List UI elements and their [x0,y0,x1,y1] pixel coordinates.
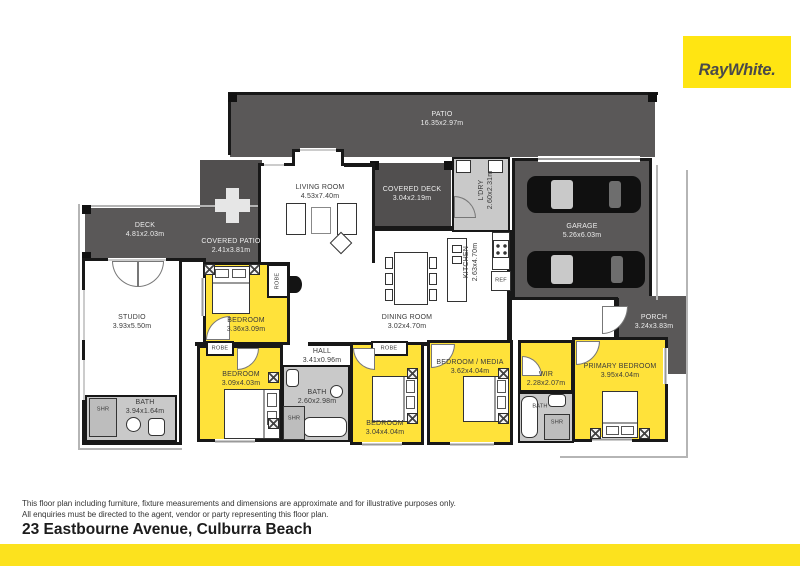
chair-icon [429,289,437,301]
bedroom1-label: BEDROOM3.36x3.09m [227,316,266,334]
property-address: 23 Eastbourne Avenue, Culburra Beach [22,521,312,539]
bath-ensuite-label: BATH [532,403,547,410]
side-table-icon [498,413,509,424]
side-table-icon [268,418,279,429]
chair-icon [429,273,437,285]
wir-label: WIR2.28x2.07m [527,370,566,388]
bedroom3-label: BEDROOM3.04x4.04m [366,419,405,437]
dining-label: DINING ROOM3.02x4.70m [382,313,432,331]
side-table-icon [249,264,260,275]
bath-main-label: BATH2.60x2.98m [298,388,337,406]
bed-icon [212,266,250,314]
basin-icon [126,417,141,432]
dining-table-icon [394,252,428,305]
ray-white-logo: RayWhite. [683,36,791,88]
chair-icon [385,273,393,285]
logo-text: RayWhite. [698,61,775,80]
toilet-icon [548,394,566,407]
covered-deck-label: COVERED DECK3.04x2.19m [383,185,441,203]
disclaimer-text: This floor plan including furniture, fix… [22,499,456,521]
garage-door [538,156,640,162]
bed-icon [224,389,280,439]
robe1-label: ROBE [274,273,281,290]
chair-icon [429,257,437,269]
chair-icon [385,257,393,269]
deck-label: DECK4.81x2.03m [126,221,165,239]
toilet-icon [148,418,165,436]
disclaimer-line2: All enquiries must be directed to the ag… [22,510,456,521]
side-table-icon [639,428,650,439]
sofa-icon [337,203,357,235]
chair-icon [385,289,393,301]
bathtub-icon [521,396,538,438]
cooktop-icon [493,240,509,258]
porch-label: PORCH3.24x3.83m [635,313,674,331]
media-label: BEDROOM / MEDIA3.62x4.04m [436,358,503,376]
primary-label: PRIMARY BEDROOM3.95x4.04m [584,362,657,380]
robe2-label: ROBE [212,345,229,352]
ref-label: REF [495,277,507,284]
sofa-icon [286,203,306,235]
coffee-table-icon [311,207,331,234]
patio-label: PATIO16.35x2.97m [421,110,464,128]
shower-icon [544,414,570,440]
shr-main-label: SHR [288,415,300,422]
side-table-icon [590,428,601,439]
shower-icon [283,406,305,440]
shower-icon [89,398,117,437]
bedroom2-label: BEDROOM3.09x4.03m [222,370,261,388]
car-icon [527,251,645,288]
robe3-label: ROBE [381,345,398,352]
studio-label: STUDIO3.93x5.50m [113,313,152,331]
hall-label: HALL3.41x0.96m [303,347,342,365]
ldry-label: L'DRY2.60x2.31m [477,171,495,210]
bed-icon [602,391,638,438]
garage-label: GARAGE5.26x6.03m [563,222,602,240]
side-table-icon [407,413,418,424]
car-icon [527,176,641,213]
side-table-icon [268,372,279,383]
covered-patio-label: COVERED PATIO2.41x3.81m [201,237,260,255]
shr-ensuite-label: SHR [551,419,563,426]
washer-icon [456,160,471,173]
bath-studio-label: BATH3.94x1.64m [126,398,165,416]
brand-yellow-bar [0,544,800,566]
side-table-icon [204,264,215,275]
kitchen-label: KITCHEN2.63x4.70m [462,243,480,282]
disclaimer-line1: This floor plan including furniture, fix… [22,499,456,510]
shr-studio-label: SHR [97,406,109,413]
living-label: LIVING ROOM4.53x7.40m [296,183,345,201]
porch-side [668,296,688,374]
hall-table-icon [289,276,302,293]
bathtub-icon [303,417,347,437]
toilet-icon [286,369,299,387]
side-table-icon [407,368,418,379]
